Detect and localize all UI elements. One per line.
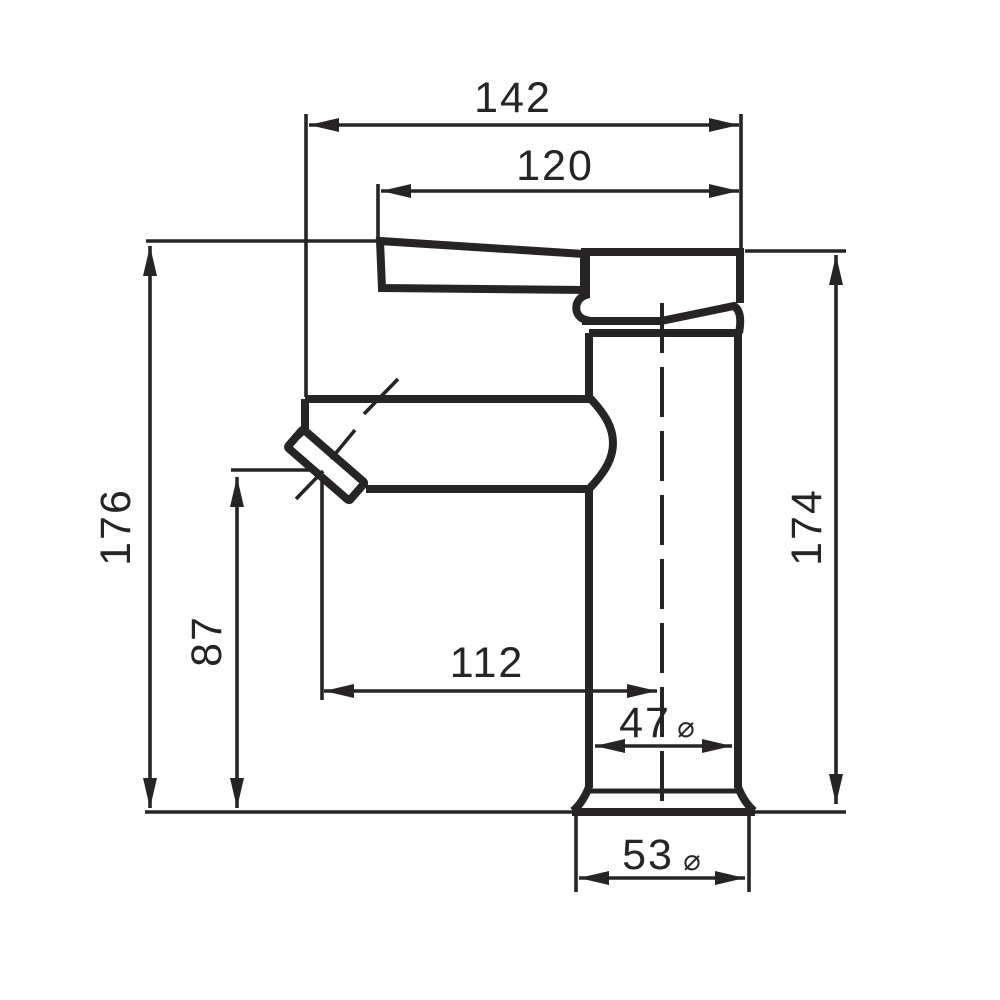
base-skirt-left-path <box>573 787 589 811</box>
body-diameter-symbol: ⌀ <box>677 710 694 744</box>
body-block-bottom-path <box>576 252 740 333</box>
hatch-slash-2 <box>331 430 355 459</box>
lever-handle-path <box>380 241 584 290</box>
dimension-labels: 142 120 176 87 112 47 ⌀ 53 ⌀ 174 <box>92 74 831 879</box>
faucet-dimension-drawing: 142 120 176 87 112 47 ⌀ 53 ⌀ 174 <box>0 0 1000 1000</box>
dim-spout-outlet-height-label: 87 <box>183 615 231 667</box>
dim-handle-reach-label: 120 <box>516 142 594 190</box>
dim-body-diameter-label: 47 <box>619 699 671 747</box>
technical-drawing-page: 142 120 176 87 112 47 ⌀ 53 ⌀ 174 <box>0 0 1000 1000</box>
aerator-rect <box>287 429 365 501</box>
dim-overall-height-label: 176 <box>92 488 140 566</box>
body-block-top-right-path <box>581 252 740 303</box>
dim-spout-reach-label: 112 <box>450 639 525 687</box>
hatch-slash-3 <box>296 471 323 499</box>
base-diameter-symbol: ⌀ <box>683 843 700 877</box>
column-left-wall-path <box>589 333 613 788</box>
dim-overall-reach-label: 142 <box>474 74 552 122</box>
base-skirt-right-path <box>738 787 754 811</box>
dim-base-diameter-label: 53 <box>622 831 674 879</box>
dimension-lines <box>150 125 836 878</box>
dim-body-height-label: 174 <box>783 488 831 566</box>
